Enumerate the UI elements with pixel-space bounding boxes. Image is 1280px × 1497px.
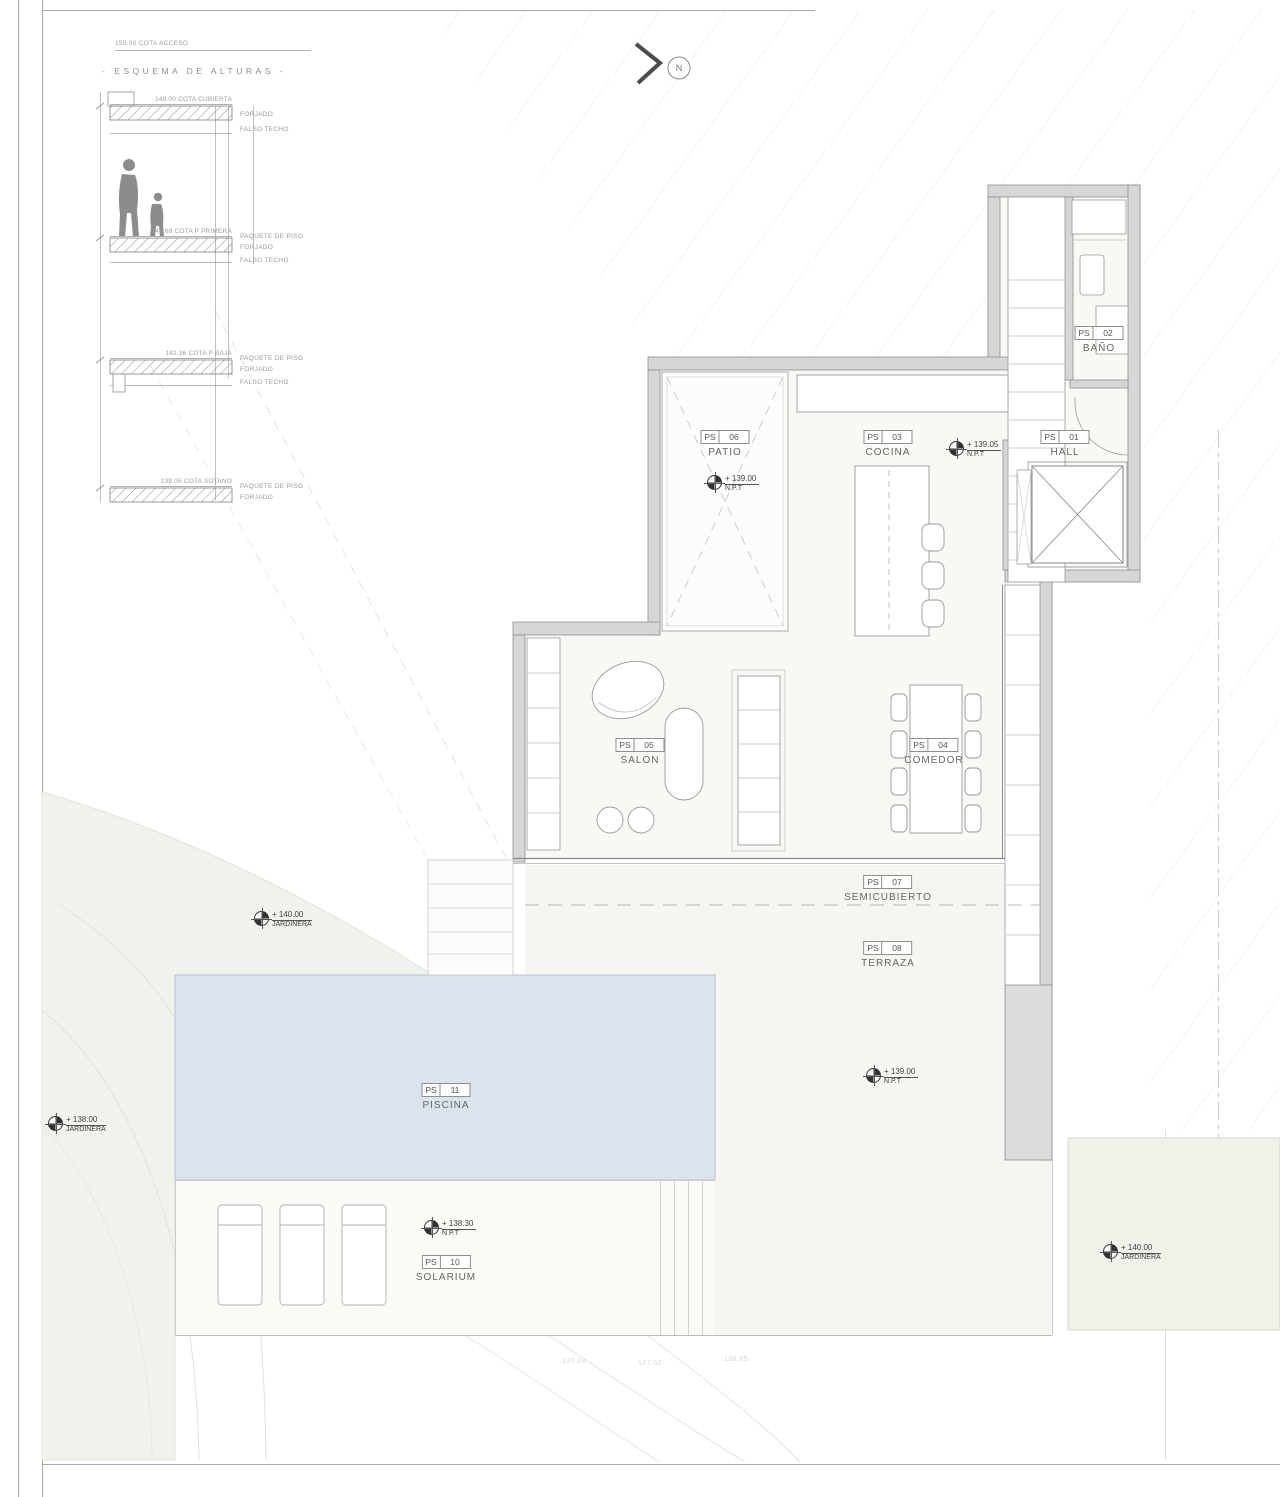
room-number: 11 — [441, 1084, 470, 1096]
room-label-patio: PS06 PATIO — [701, 427, 750, 459]
room-code: PS — [1042, 431, 1060, 443]
room-code: PS — [1076, 327, 1094, 339]
room-name: TERRAZA — [861, 957, 915, 970]
room-number: 04 — [928, 739, 957, 751]
slab-layer-label: FALSO TECHO — [240, 379, 289, 387]
east-shelving — [1003, 585, 1041, 985]
planter-steps — [428, 860, 513, 975]
elevation-value: + 138.30 — [442, 1219, 476, 1230]
sun-loungers — [218, 1205, 386, 1305]
room-name: SALON — [616, 754, 665, 767]
elevation-value: + 139.00 — [725, 474, 759, 485]
esquema-title: - ESQUEMA DE ALTURAS - — [102, 66, 286, 76]
pool — [175, 975, 715, 1180]
room-name: PISCINA — [422, 1099, 471, 1112]
elevation-value: + 139.05 — [967, 440, 1001, 451]
elevation-marker-jardinera-left: + 140.00JARDINERA — [254, 911, 312, 929]
room-label-solarium: PS10 SOLARIUM — [416, 1252, 476, 1284]
elevation-sublabel: N.P.T — [967, 451, 1001, 459]
access-level-note: 155.00 COTA ACCESO — [115, 40, 311, 51]
elevation-sublabel: N.P.T — [725, 485, 759, 493]
elevation-sublabel: JARDINERA — [1121, 1254, 1161, 1262]
slab-layer-label: FORJADO — [240, 244, 273, 252]
room-number: 02 — [1094, 327, 1123, 339]
patio-court — [662, 372, 788, 631]
elevation-value: + 138.00 — [66, 1115, 106, 1126]
room-label-bano: PS02 BAÑO — [1075, 323, 1124, 355]
room-name: COMEDOR — [904, 754, 963, 767]
room-name: HALL — [1041, 446, 1090, 459]
slab-layer-label: PAQUETE DE PISO — [240, 355, 303, 363]
room-code: PS — [422, 1256, 440, 1268]
room-label-piscina: PS11 PISCINA — [422, 1080, 471, 1112]
room-name: PATIO — [701, 446, 750, 459]
room-code: PS — [617, 739, 635, 751]
room-label-comedor: PS04 COMEDOR — [904, 735, 963, 767]
room-label-cocina: PS03 COCINA — [864, 427, 913, 459]
slab-layer-label: FALSO TECHO — [240, 126, 289, 134]
slab-layer-label: FORJADO — [240, 366, 273, 374]
room-number: 06 — [720, 431, 749, 443]
cota-p-primera: 145.68 COTA P PRIMERA — [110, 227, 232, 237]
cota-p-baja: 142.36 COTA P BAJA — [110, 349, 232, 359]
room-name: COCINA — [864, 446, 913, 459]
drawing-sheet: 155.00 COTA ACCESO - ESQUEMA DE ALTURAS … — [0, 0, 1280, 1497]
elevation-sublabel: N.P.T — [442, 1230, 476, 1238]
cota-cubierta: 149.00 COTA CUBIERTA — [110, 95, 232, 105]
room-number: 01 — [1060, 431, 1089, 443]
room-name: SOLARIUM — [416, 1271, 476, 1284]
room-number: 05 — [635, 739, 664, 751]
cota-sotano: 139.05 COTA SOTANO — [110, 477, 232, 487]
slab-layer-label: FORJADO — [240, 111, 273, 119]
elevation-marker-patio: + 139.00N.P.T — [707, 475, 759, 493]
room-number: 08 — [882, 942, 911, 954]
room-code: PS — [864, 876, 882, 888]
elevation-value: + 139.00 — [884, 1067, 918, 1078]
elevation-marker-jardinera-right: + 140.00JARDINERA — [1103, 1244, 1161, 1262]
elevation-marker-cocina: + 139.05N.P.T — [949, 441, 1001, 459]
room-name: BAÑO — [1075, 342, 1124, 355]
contour-label: 137.02 — [638, 1360, 662, 1367]
level-marker-icon — [424, 1220, 439, 1235]
room-label-salon: PS05 SALON — [616, 735, 665, 767]
room-code: PS — [864, 942, 882, 954]
room-code: PS — [865, 431, 883, 443]
room-label-semicubierto: PS07 SEMICUBIERTO — [844, 872, 932, 904]
slab-layer-label: FORJADO — [240, 494, 273, 502]
room-number: 03 — [883, 431, 912, 443]
elevation-sublabel: N.P.T — [884, 1078, 918, 1086]
elevation-marker-terraza: + 139.00N.P.T — [866, 1068, 918, 1086]
room-code: PS — [910, 739, 928, 751]
room-number: 10 — [440, 1256, 469, 1268]
level-marker-icon — [1103, 1244, 1118, 1259]
level-marker-icon — [866, 1068, 881, 1083]
level-marker-icon — [707, 475, 722, 490]
elevation-value: + 140.00 — [272, 910, 312, 921]
esquema-diagram — [96, 92, 254, 502]
room-label-terraza: PS08 TERRAZA — [861, 938, 915, 970]
room-number: 07 — [882, 876, 911, 888]
elevation-sublabel: JARDINERA — [272, 921, 312, 929]
level-marker-icon — [48, 1116, 63, 1131]
slab-layer-label: FALSO TECHO — [240, 257, 289, 265]
human-figures — [119, 159, 164, 237]
level-marker-icon — [254, 911, 269, 926]
room-code: PS — [702, 431, 720, 443]
room-code: PS — [423, 1084, 441, 1096]
room-label-hall: PS01 HALL — [1041, 427, 1090, 459]
elevation-marker-solarium: + 138.30N.P.T — [424, 1220, 476, 1238]
contour-label: 137.24 — [562, 1358, 586, 1365]
contour-label: 138.85 — [724, 1356, 748, 1363]
elevation-value: + 140.00 — [1121, 1243, 1161, 1254]
slab-layer-label: PAQUETE DE PISO — [240, 233, 303, 241]
room-name: SEMICUBIERTO — [844, 891, 932, 904]
level-marker-icon — [949, 441, 964, 456]
north-label: N — [676, 63, 683, 73]
elevation-marker-jardinera-far-left: + 138.00JARDINERA — [48, 1116, 106, 1134]
elevation-sublabel: JARDINERA — [66, 1126, 106, 1134]
slab-layer-label: PAQUETE DE PISO — [240, 483, 303, 491]
